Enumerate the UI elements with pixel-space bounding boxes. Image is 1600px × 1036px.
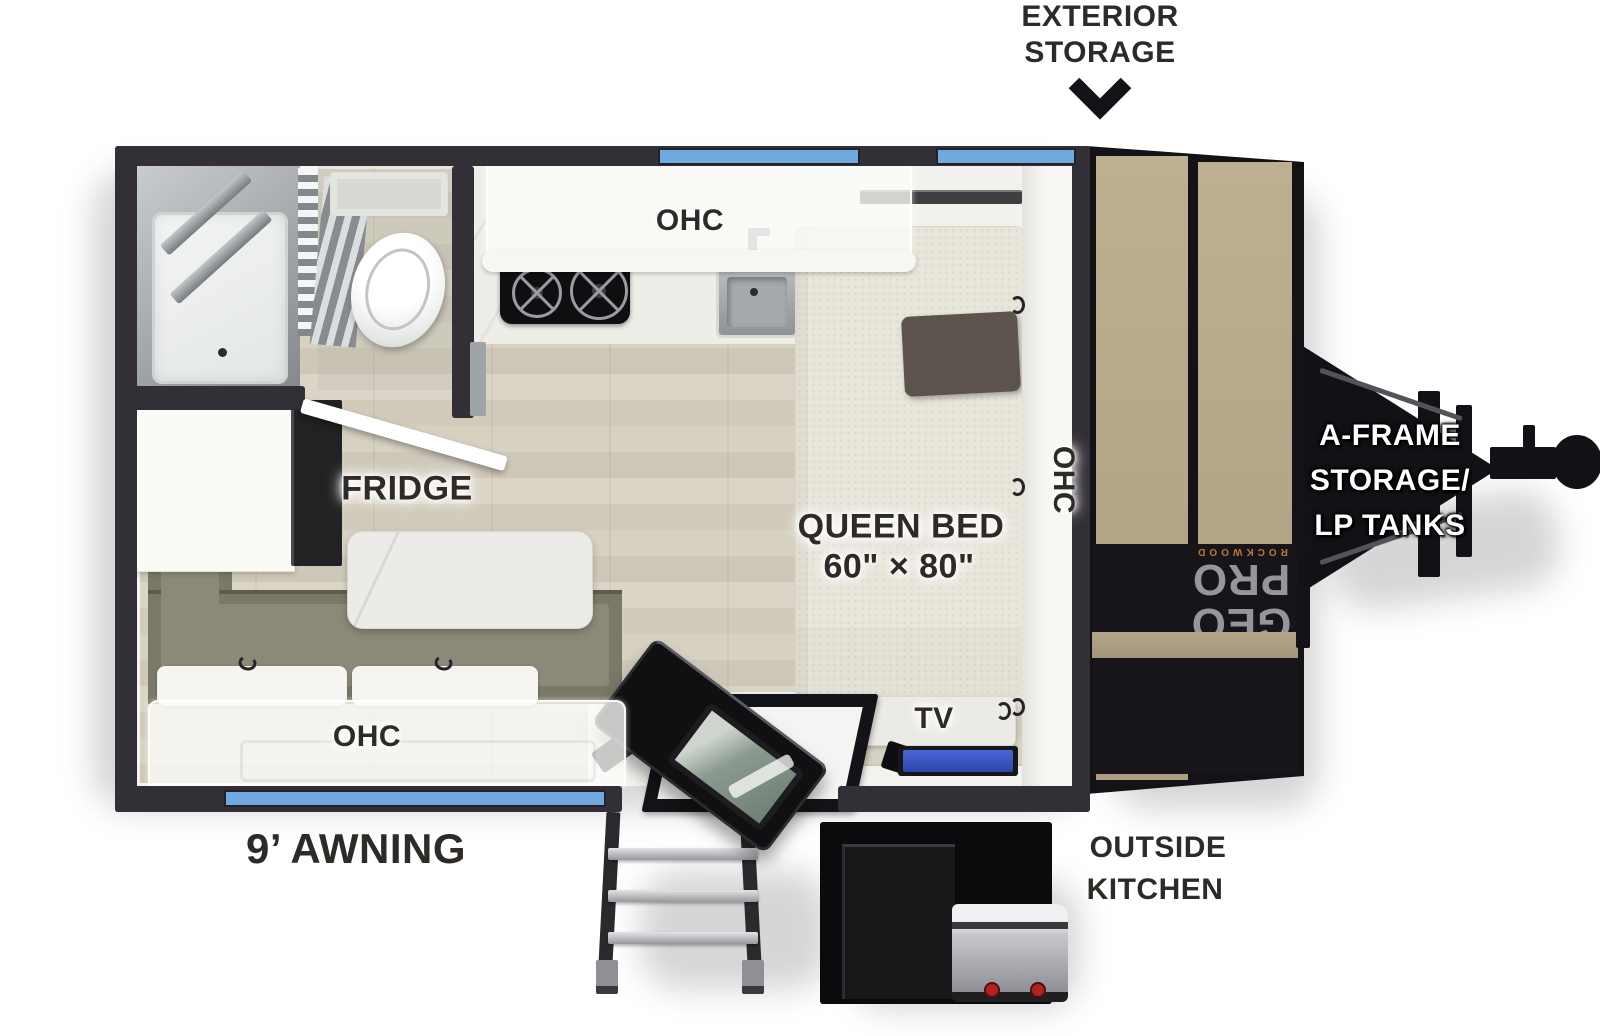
counter-block bbox=[133, 394, 295, 572]
bench-ohc-face bbox=[240, 740, 596, 782]
chevron-down-icon bbox=[1068, 78, 1132, 120]
griddle-lid bbox=[952, 922, 1068, 929]
window-top-left bbox=[658, 148, 860, 165]
griddle-knob bbox=[1030, 982, 1046, 998]
a-frame-label-line3: LP TANKS bbox=[1314, 509, 1465, 543]
brand-graphic: GEO PRO ROCKWOOD bbox=[1176, 546, 1298, 632]
cap-edge-accent bbox=[1296, 586, 1310, 648]
kitchen-ohc-label: OHC bbox=[656, 204, 724, 238]
floorplan-stage: GEO PRO ROCKWOOD EXTERIOR STORAGE O bbox=[0, 0, 1600, 1036]
left-wall bbox=[115, 146, 137, 812]
hitch-pin bbox=[1523, 425, 1535, 449]
bath-south-wall bbox=[115, 386, 305, 410]
pillow bbox=[901, 311, 1021, 397]
sink-bowl bbox=[727, 277, 787, 327]
kitchen-ohc-lip bbox=[482, 250, 916, 272]
latch-hook bbox=[1010, 296, 1025, 314]
window-top-right bbox=[936, 148, 1076, 165]
latch-hook bbox=[1010, 698, 1025, 716]
griddle-knob bbox=[984, 982, 1000, 998]
bench-ohc-label: OHC bbox=[333, 720, 401, 754]
step-tread bbox=[608, 890, 758, 902]
fridge-unit bbox=[291, 400, 342, 566]
queen-bed-label-line1: QUEEN BED bbox=[798, 508, 1005, 547]
bottom-wall-right bbox=[838, 786, 1090, 812]
latch-hook bbox=[1010, 478, 1025, 496]
brand-text-large: GEO PRO bbox=[1176, 557, 1298, 632]
exterior-storage-label-line1: EXTERIOR bbox=[1021, 0, 1178, 34]
outside-kitchen-drawer bbox=[842, 844, 955, 999]
bed-wall-ohc-label: OHC bbox=[1046, 446, 1080, 514]
sink-drain bbox=[750, 288, 758, 296]
dinette-table bbox=[347, 531, 593, 629]
step-caster bbox=[742, 960, 764, 994]
bath-partition-cap bbox=[470, 342, 486, 416]
cap-tan-stripe bbox=[1092, 632, 1298, 658]
cap-black-band bbox=[1092, 658, 1298, 774]
step-tread bbox=[608, 848, 758, 860]
kitchen-sink bbox=[716, 266, 798, 338]
a-frame-label-line1: A-FRAME bbox=[1319, 419, 1461, 453]
hitch-shank bbox=[1490, 447, 1556, 479]
outside-kitchen-label-line2: KITCHEN bbox=[1087, 873, 1224, 907]
tv-label: TV bbox=[914, 702, 953, 736]
brand-text-small: ROCKWOOD bbox=[1176, 546, 1298, 557]
window-awning-side bbox=[224, 790, 606, 807]
outside-kitchen-griddle bbox=[952, 904, 1068, 1002]
toilet-seat bbox=[356, 241, 439, 338]
awning-label: 9’ AWNING bbox=[246, 825, 466, 873]
tv-flat bbox=[898, 746, 1018, 776]
tv-screen bbox=[903, 750, 1013, 772]
hitch-coupler bbox=[1552, 435, 1600, 489]
cap-graphic-band: GEO PRO ROCKWOOD bbox=[1092, 544, 1298, 632]
front-cap: GEO PRO ROCKWOOD bbox=[1086, 146, 1304, 794]
latch-hook bbox=[996, 702, 1011, 720]
step-tread bbox=[608, 932, 758, 944]
shower-drain bbox=[218, 348, 227, 357]
steps-shadow bbox=[640, 870, 830, 990]
queen-bed bbox=[795, 226, 1024, 708]
queen-bed-label-line2: 60" × 80" bbox=[823, 548, 974, 587]
outside-kitchen-label-line1: OUTSIDE bbox=[1090, 831, 1227, 865]
a-frame-label-line2: STORAGE/ bbox=[1310, 464, 1470, 498]
bath-shelf bbox=[330, 172, 448, 216]
exterior-storage-label-line2: STORAGE bbox=[1024, 36, 1175, 70]
burner bbox=[512, 268, 562, 318]
cap-edge-accent bbox=[1296, 498, 1310, 556]
fridge-label: FRIDGE bbox=[341, 470, 472, 509]
step-caster bbox=[596, 960, 618, 994]
